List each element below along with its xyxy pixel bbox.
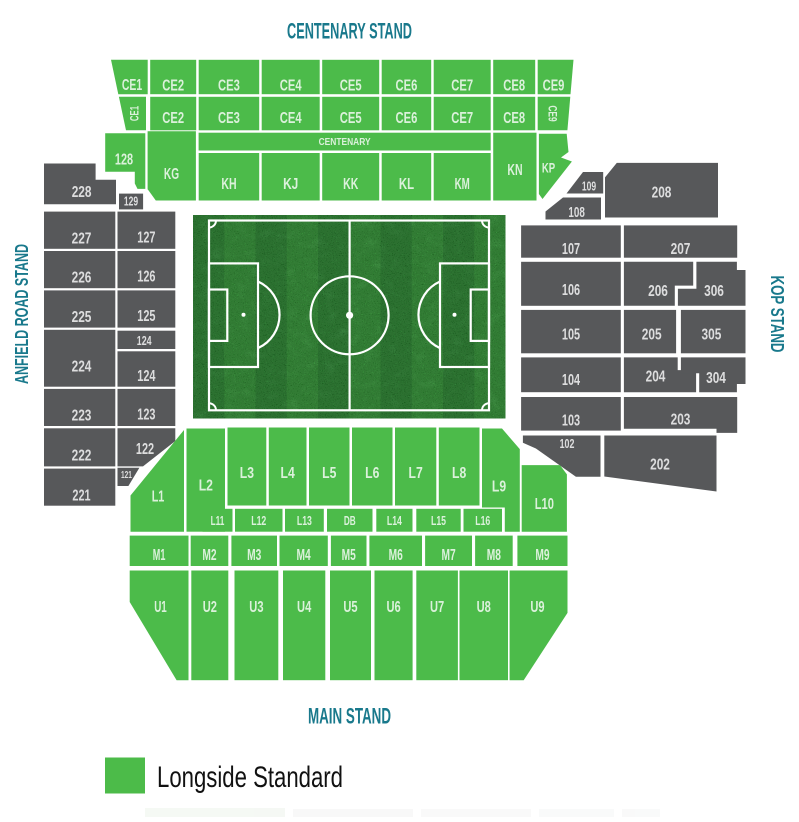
svg-text:L10: L10 <box>535 496 554 513</box>
svg-text:CE8: CE8 <box>503 78 525 95</box>
svg-text:CE9: CE9 <box>543 78 565 95</box>
svg-text:306: 306 <box>704 283 724 300</box>
svg-text:207: 207 <box>671 241 691 258</box>
svg-text:CE8: CE8 <box>503 110 525 127</box>
svg-text:121: 121 <box>121 469 132 481</box>
svg-text:206: 206 <box>648 283 668 300</box>
svg-text:ANFIELD ROAD STAND: ANFIELD ROAD STAND <box>11 244 32 384</box>
svg-text:DB: DB <box>344 514 356 528</box>
svg-text:Longside Standard: Longside Standard <box>157 761 343 794</box>
svg-text:CE7: CE7 <box>451 78 473 95</box>
svg-text:CE6: CE6 <box>396 78 418 95</box>
svg-text:M3: M3 <box>247 547 261 564</box>
svg-text:104: 104 <box>562 372 580 389</box>
svg-text:M5: M5 <box>342 547 356 564</box>
svg-text:KN: KN <box>507 162 522 179</box>
svg-text:KG: KG <box>164 166 179 183</box>
svg-text:L11: L11 <box>211 514 225 528</box>
svg-text:U8: U8 <box>477 599 491 616</box>
svg-text:U9: U9 <box>530 599 544 616</box>
svg-text:CE7: CE7 <box>451 110 473 127</box>
svg-text:CE4: CE4 <box>280 78 302 95</box>
svg-text:203: 203 <box>671 412 691 429</box>
svg-text:M2: M2 <box>202 547 216 564</box>
svg-text:CE2: CE2 <box>162 78 184 95</box>
svg-text:CENTENARY STAND: CENTENARY STAND <box>287 18 412 43</box>
svg-text:U7: U7 <box>430 599 444 616</box>
svg-text:U1: U1 <box>154 599 167 616</box>
svg-text:226: 226 <box>72 270 92 287</box>
svg-text:M8: M8 <box>487 547 501 564</box>
svg-text:M6: M6 <box>389 547 403 564</box>
svg-text:M1: M1 <box>153 547 166 564</box>
svg-text:304: 304 <box>706 370 726 387</box>
svg-text:CE5: CE5 <box>340 110 362 127</box>
svg-text:KK: KK <box>343 176 358 193</box>
svg-text:L12: L12 <box>251 514 266 528</box>
svg-text:223: 223 <box>72 408 92 425</box>
svg-text:L1: L1 <box>152 489 165 506</box>
svg-text:225: 225 <box>72 309 92 326</box>
svg-text:305: 305 <box>702 327 722 344</box>
svg-text:L16: L16 <box>475 514 490 528</box>
svg-text:CE1: CE1 <box>128 106 142 121</box>
svg-text:KP: KP <box>542 159 555 175</box>
svg-text:122: 122 <box>136 441 154 458</box>
svg-text:224: 224 <box>72 358 92 375</box>
svg-text:108: 108 <box>568 205 584 221</box>
svg-text:U3: U3 <box>249 599 263 616</box>
svg-text:U4: U4 <box>297 599 311 616</box>
svg-text:221: 221 <box>72 487 90 504</box>
svg-text:KOP STAND: KOP STAND <box>767 276 788 353</box>
svg-text:227: 227 <box>72 230 92 247</box>
svg-text:L3: L3 <box>240 465 254 482</box>
svg-text:CE3: CE3 <box>218 78 240 95</box>
svg-text:CE1: CE1 <box>122 77 142 94</box>
svg-text:129: 129 <box>124 194 138 208</box>
svg-text:124: 124 <box>137 368 155 385</box>
svg-text:109: 109 <box>582 179 596 193</box>
svg-text:L14: L14 <box>387 514 402 528</box>
svg-text:CE9: CE9 <box>545 105 559 122</box>
svg-text:M7: M7 <box>441 547 455 564</box>
svg-text:208: 208 <box>652 185 672 202</box>
svg-text:L15: L15 <box>431 514 446 528</box>
svg-text:102: 102 <box>560 436 575 451</box>
svg-text:CE5: CE5 <box>340 78 362 95</box>
svg-text:KH: KH <box>221 176 236 193</box>
svg-text:U6: U6 <box>386 599 400 616</box>
svg-text:L9: L9 <box>492 478 506 495</box>
svg-text:L5: L5 <box>322 465 336 482</box>
svg-text:CE3: CE3 <box>218 110 240 127</box>
svg-text:U2: U2 <box>203 599 217 616</box>
svg-text:M9: M9 <box>535 547 549 564</box>
svg-text:127: 127 <box>137 229 155 246</box>
svg-text:125: 125 <box>137 308 155 325</box>
svg-text:M4: M4 <box>297 547 311 564</box>
svg-text:KL: KL <box>399 176 414 193</box>
svg-text:105: 105 <box>562 327 580 344</box>
svg-text:MAIN STAND: MAIN STAND <box>308 703 391 728</box>
svg-text:222: 222 <box>72 448 92 465</box>
svg-text:228: 228 <box>72 184 92 201</box>
svg-text:123: 123 <box>137 407 155 424</box>
svg-text:128: 128 <box>115 152 133 169</box>
svg-text:CE6: CE6 <box>396 110 418 127</box>
svg-text:CENTENARY: CENTENARY <box>319 136 371 148</box>
svg-text:204: 204 <box>646 368 666 385</box>
svg-text:107: 107 <box>562 241 580 258</box>
svg-text:103: 103 <box>562 413 580 430</box>
svg-text:KJ: KJ <box>283 176 298 193</box>
svg-text:L2: L2 <box>199 478 213 495</box>
svg-text:202: 202 <box>650 457 670 474</box>
svg-text:CE2: CE2 <box>162 110 184 127</box>
svg-text:L6: L6 <box>365 465 379 482</box>
svg-text:L13: L13 <box>297 514 312 528</box>
svg-text:126: 126 <box>137 269 155 286</box>
svg-text:CE4: CE4 <box>280 110 302 127</box>
svg-text:L8: L8 <box>452 465 466 482</box>
svg-text:L7: L7 <box>409 465 423 482</box>
svg-text:124: 124 <box>137 333 152 348</box>
svg-text:L4: L4 <box>281 465 295 482</box>
svg-text:106: 106 <box>562 282 580 299</box>
svg-text:U5: U5 <box>343 599 357 616</box>
svg-text:205: 205 <box>642 327 662 344</box>
svg-text:KM: KM <box>455 176 470 193</box>
